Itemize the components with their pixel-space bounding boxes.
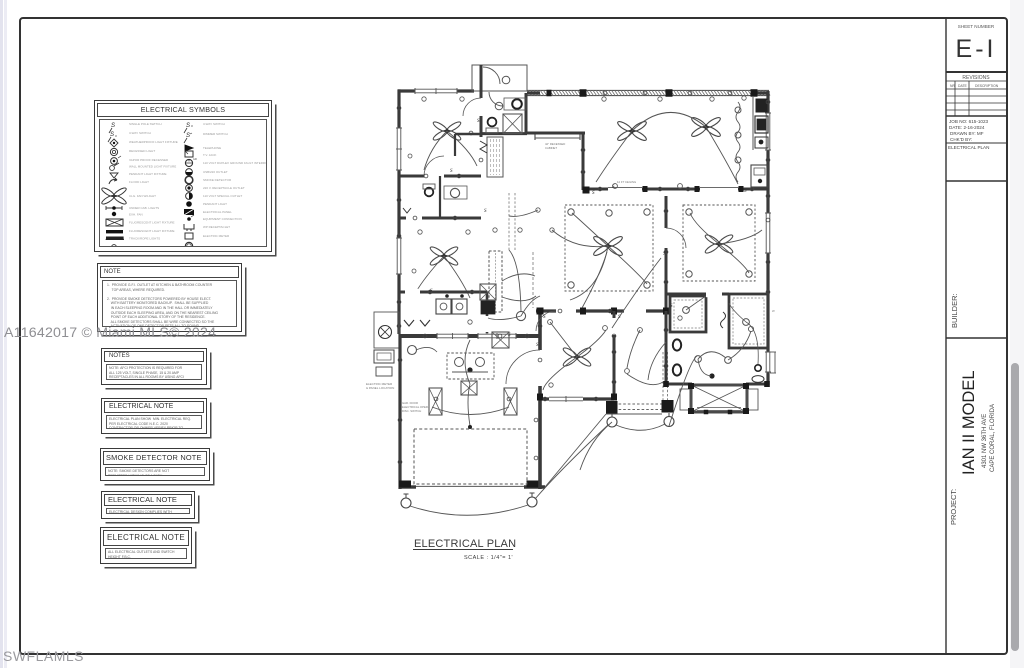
svg-text:JOB NO: 615-1023: JOB NO: 615-1023 <box>949 119 989 124</box>
svg-text:S: S <box>543 315 546 320</box>
svg-text:DISC. SWITCH: DISC. SWITCH <box>402 409 421 413</box>
svg-text:ELECTRICAL PLAN: ELECTRICAL PLAN <box>948 145 989 150</box>
svg-text:SCALE : 1/4"= 1': SCALE : 1/4"= 1' <box>464 555 513 561</box>
svg-text:DRAWN BY: MF: DRAWN BY: MF <box>950 131 984 136</box>
svg-text:CAPE CORAL, FLORIDA: CAPE CORAL, FLORIDA <box>990 404 996 472</box>
svg-text:DATE: DATE <box>958 84 968 88</box>
svg-text:4301 NW 36TH AVE: 4301 NW 36TH AVE <box>982 414 988 468</box>
svg-text:SHEET NUMBER: SHEET NUMBER <box>958 24 995 29</box>
svg-text:BUILDER:: BUILDER: <box>950 293 959 328</box>
svg-text:12 FT CEILING: 12 FT CEILING <box>617 180 636 184</box>
svg-text:& PANEL LOCATION: & PANEL LOCATION <box>366 386 394 390</box>
svg-text:NR: NR <box>950 84 955 88</box>
svg-text:IAN II MODEL: IAN II MODEL <box>960 370 978 475</box>
svg-text:S: S <box>592 191 595 196</box>
svg-text:W: W <box>772 309 775 313</box>
svg-text:DESCRIPTION: DESCRIPTION <box>975 84 999 88</box>
svg-text:S: S <box>670 304 673 309</box>
svg-text:PROJECT:: PROJECT: <box>949 489 958 525</box>
svg-text:CHK'D BY:: CHK'D BY: <box>950 137 972 142</box>
svg-text:REVISIONS: REVISIONS <box>962 75 990 81</box>
svg-text:CABINET: CABINET <box>545 146 557 150</box>
svg-text:DATE: 2-16-2024: DATE: 2-16-2024 <box>949 125 985 130</box>
svg-text:S: S <box>484 209 487 214</box>
svg-text:E-I: E-I <box>956 35 997 63</box>
svg-text:S: S <box>450 169 453 174</box>
svg-text:ELECTRICAL PLAN: ELECTRICAL PLAN <box>414 538 516 550</box>
